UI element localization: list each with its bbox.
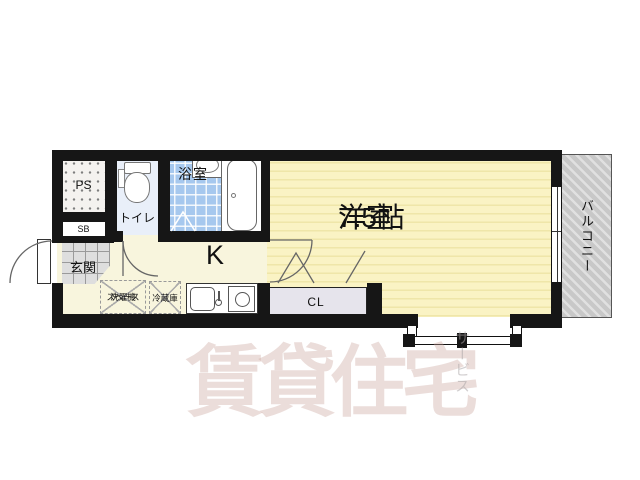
kitchen-label: K [195,240,235,271]
toilet-label: トイレ [110,209,164,226]
bathroom-label: 浴室 [168,164,218,184]
closet-door-diagonal [346,251,365,283]
toilet-door-arc [123,241,158,276]
entrance-door-arc [10,241,52,283]
entrance-label: 玄関 [63,257,103,276]
floorplan-canvas: バルコニー 洗濯機 スペース 冷蔵庫 SB CL [0,0,640,480]
door-symbols-overlay [0,0,640,480]
bath-folding-door-symbol [171,212,195,231]
pipe-space-label: PS [60,178,107,192]
main-room-size: 7.5帖 [338,203,405,233]
